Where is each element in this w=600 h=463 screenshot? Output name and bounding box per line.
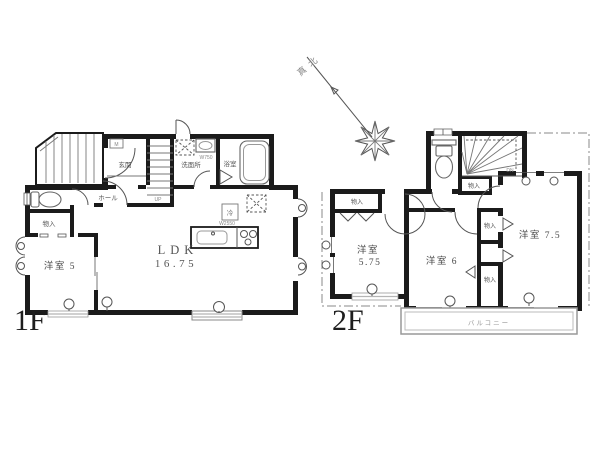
closet-label-lower: 物入: [484, 276, 496, 284]
room-label-western5: 洋室 5: [44, 260, 76, 272]
floor-1f-plan: UP W750: [14, 120, 307, 337]
toilet-2f-icon: [432, 129, 456, 178]
washbasin-icon: W750: [196, 139, 215, 161]
stairs-1f: UP: [147, 146, 173, 203]
north-label: 真北: [295, 52, 324, 78]
balcony: バルコニー: [401, 308, 577, 334]
floorplan-image: UP W750: [0, 0, 600, 463]
floor-label-1f: 1F: [14, 304, 46, 337]
north-arrow-line: [307, 57, 372, 137]
balcony-label: バルコニー: [468, 319, 510, 327]
meter-box: M: [110, 139, 123, 148]
room-label-western575-area: 5.75: [359, 258, 382, 268]
toilet-icon: [31, 192, 61, 207]
floorplan-page: UP W750: [0, 0, 600, 463]
compass: 真北: [295, 52, 395, 161]
room-label-western75: 洋室 7.5: [519, 229, 561, 241]
walls-2f-exterior: [330, 131, 582, 311]
porch-steps: [36, 133, 103, 185]
room-label-western6: 洋室 6: [426, 255, 458, 267]
meter-label: M: [114, 142, 118, 148]
stairs-dn-label: DN: [506, 168, 514, 174]
closet-label-w575: 物入: [351, 198, 363, 206]
stairs-2f: DN: [462, 136, 522, 176]
floor-label-2f: 2F: [332, 304, 364, 337]
stairs-up-label: UP: [155, 197, 163, 203]
room-label-bath: 浴室: [224, 159, 238, 168]
washer-pan-icon: [176, 140, 194, 155]
room-label-western575: 洋室: [357, 244, 379, 256]
room-label-storage-1f: 物入: [43, 219, 57, 228]
room-label-ldk: LDK: [158, 243, 199, 257]
fridge-space: 冷: [222, 195, 266, 220]
closet-label-upper: 物入: [484, 222, 496, 230]
room-label-genkan: 玄関: [119, 160, 132, 169]
kitchen-counter-icon: W2550: [191, 221, 258, 248]
washbasin-size-label: W750: [199, 155, 212, 161]
kitchen-size-label: W2550: [219, 221, 235, 227]
room-label-hall: ホール: [98, 194, 118, 202]
room-label-washroom: 洗面所: [181, 160, 201, 169]
fridge-label: 冷: [227, 208, 234, 217]
walls-2f-interior: [334, 136, 503, 311]
closet-label-stairs: 物入: [468, 182, 480, 190]
room-label-ldk-area: 16.75: [155, 258, 197, 270]
floor-2f-plan: DN: [322, 129, 589, 337]
